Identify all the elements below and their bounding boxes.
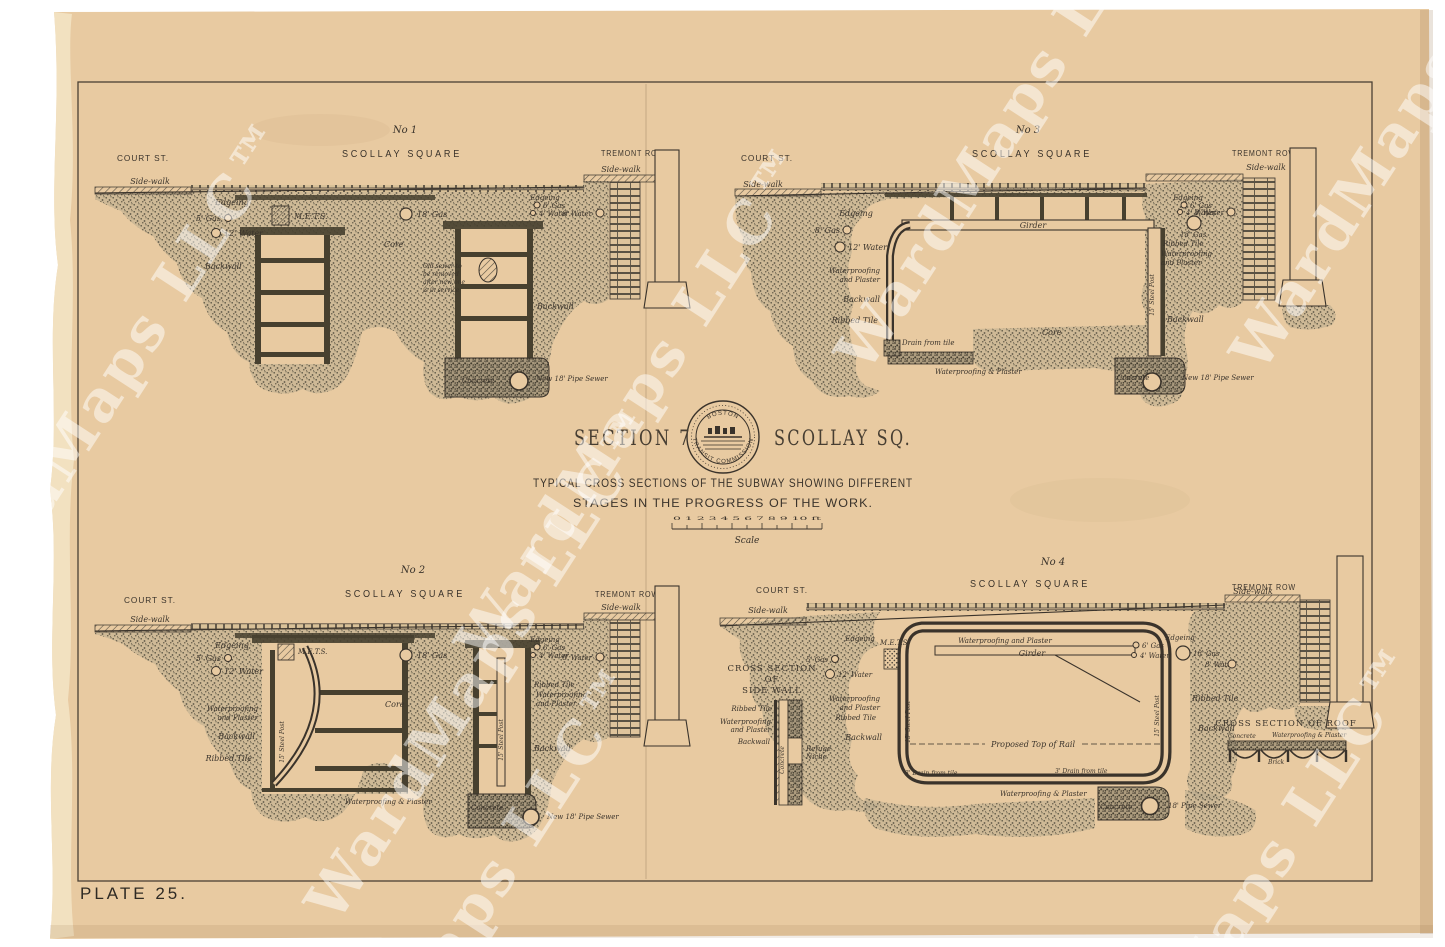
no2-water4-pipe-icon — [531, 653, 536, 658]
no4-water4-label: 4' Water — [1139, 652, 1170, 660]
subtitle-line2: STAGES IN THE PROGRESS OF THE WORK. — [573, 496, 873, 510]
no4-street-paving — [806, 603, 1225, 611]
side-wall-waterproofing-l2: and Plaster — [731, 726, 772, 734]
no4-steel-post-left-label: 15' Steel Post — [905, 701, 912, 743]
no4-concrete-label: Concrete — [1100, 803, 1132, 811]
no3-sidewalk-right-label: Side-walk — [1246, 163, 1286, 172]
no1-sidewalk-right-label: Side-walk — [601, 165, 641, 174]
no3-gas8-label: 8' Gas — [815, 226, 840, 235]
no2-waterproofing-left-l1: Waterproofing — [207, 705, 258, 713]
no1-note-line1: Old sewer to — [423, 263, 462, 270]
no3-gas6-pipe-icon — [1181, 202, 1187, 208]
no4-mets-duct-icon — [884, 649, 899, 669]
side-wall-title-l2: OF — [765, 675, 780, 685]
no4-gas5-pipe-icon — [832, 656, 839, 663]
no4-ribbed-tile-left-label: Ribbed Tile — [834, 714, 876, 722]
no1-water8-pipe-icon — [596, 209, 604, 217]
no3-new-sewer-label: New 18' Pipe Sewer — [1181, 374, 1254, 382]
no2-square-label: SCOLLAY SQUARE — [345, 589, 465, 600]
side-wall-concrete-label: Concrete — [779, 746, 786, 774]
no1-court-st-label: COURT ST. — [117, 153, 169, 163]
side-wall-waterproofing-l1: Waterproofing — [720, 718, 771, 726]
no2-water8-label: 8' Water — [562, 654, 592, 662]
no2-ribbed-tile-left-label: Ribbed Tile — [205, 754, 253, 763]
no1-new-sewer-label: New 18' Pipe Sewer — [535, 375, 608, 383]
no2-sidewalk-left-label: Side-walk — [130, 615, 170, 624]
no2-number: No 2 — [400, 565, 425, 576]
plate-label: PLATE 25. — [80, 884, 188, 904]
no2-edgeing-left-label: Edgeing — [214, 641, 249, 650]
no1-backwall-left-label: Backwall — [204, 262, 242, 271]
no4-steel-post-right-label: 15' Steel Post — [1154, 695, 1161, 737]
roof-title: CROSS SECTION OF ROOF — [1215, 719, 1357, 729]
no1-mets-label: M.E.T.S. — [293, 212, 328, 221]
no1-gas5-pipe-icon — [225, 215, 232, 222]
no4-edgeing-right-label: Edgeing — [1164, 634, 1195, 642]
no2-new-sewer-label: New 18' Pipe Sewer — [546, 813, 619, 821]
no2-edgeing-right-label: Edgeing — [529, 636, 560, 644]
no3-gas8-pipe-icon — [843, 226, 851, 234]
no1-edgeing-right-label: Edgeing — [529, 194, 560, 202]
no1-sidewalk-right — [584, 175, 655, 182]
no4-gas18-pipe-icon — [1176, 646, 1190, 660]
no4-ribbed-tile-right-label: Ribbed Tile — [1191, 694, 1239, 703]
no1-gas6-label: 6' Gas — [543, 202, 565, 210]
scanned-plate-page: BOSTON TRANSIT COMMISSION SECTION 7 SCOL… — [0, 0, 1445, 947]
no1-water12-label: 12' Water — [224, 229, 264, 238]
no3-tremont-row-label: TREMONT ROW — [1232, 148, 1296, 158]
no3-water12-label: 12' Water — [848, 243, 888, 252]
no4-sidewalk-left-label: Side-walk — [748, 606, 788, 615]
no4-waterproofing-bottom-label: Waterproofing & Plaster — [1000, 790, 1087, 798]
no3-waterproofing-bottom-label: Waterproofing & Plaster — [935, 368, 1022, 376]
roof-waterproofing-label: Waterproofing & Plaster — [1272, 732, 1347, 739]
no3-waterproofing-left-l1: Waterproofing — [829, 267, 880, 275]
no3-water8-pipe-icon — [1227, 208, 1235, 216]
no4-drain-left-label: 3' Drain from tile — [905, 770, 958, 777]
roof-concrete-band — [1228, 741, 1346, 750]
no4-water8-pipe-icon — [1228, 660, 1236, 668]
no3-floor — [888, 352, 973, 364]
no4-sidewalk-right-label: Side-walk — [1233, 587, 1273, 596]
no3-ribbed-tile-left-label: Ribbed Tile — [831, 316, 879, 325]
no2-court-st-label: COURT ST. — [124, 595, 176, 605]
no2-gas5-pipe-icon — [225, 655, 232, 662]
subtitle-line1: TYPICAL CROSS SECTIONS OF THE SUBWAY SHO… — [533, 476, 913, 490]
no2-waterproofing-left-l2: and Plaster — [218, 714, 259, 722]
no1-number: No 1 — [392, 125, 417, 136]
no3-building-wall — [1243, 178, 1275, 300]
no4-water12-pipe-icon — [826, 670, 835, 679]
no4-drain-right-label: 3' Drain from tile — [1055, 768, 1108, 775]
no1-note-line4: is in service — [423, 287, 460, 294]
no3-edgeing-right-label: Edgeing — [1172, 194, 1203, 202]
no4-waterproofing-left-l1: Waterproofing — [829, 695, 880, 703]
no4-pipe-sewer-label: 18' Pipe Sewer — [1168, 802, 1222, 810]
roof-brick-label: Brick — [1267, 759, 1285, 766]
no1-building-wall — [610, 182, 640, 299]
no2-ribbed-tile-right-label: Ribbed Tile — [533, 681, 575, 689]
side-wall-refuge-niche — [788, 738, 802, 764]
no3-waterproofing-right-l2: and Plaster — [1161, 259, 1202, 267]
no3-girder-label: Girder — [1020, 221, 1048, 230]
no3-steel-post-label: 15' Steel Post — [1149, 274, 1156, 316]
no4-number: No 4 — [1040, 557, 1065, 568]
section-title: SECTION 7 — [574, 426, 692, 450]
no4-waterproofing-roof-label: Waterproofing and Plaster — [958, 637, 1052, 645]
no3-concrete-label: Concrete — [1117, 374, 1149, 382]
no2-gas18-pipe-icon — [400, 649, 412, 661]
side-wall-refuge-l1: Refuge — [805, 745, 831, 753]
no3-street-paving — [821, 183, 1146, 191]
no3-sidewalk-left-label: Side-walk — [743, 180, 783, 189]
no2-sidewalk-right-label: Side-walk — [601, 603, 641, 612]
no1-water4-pipe-icon — [531, 211, 536, 216]
no3-water8-label: 8' Water — [1194, 209, 1224, 217]
no4-gas6-pipe-icon — [1133, 642, 1139, 648]
side-wall-title-l3: SIDE WALL — [742, 686, 802, 696]
no4-girder-label: Girder — [1019, 649, 1047, 658]
side-wall-backwall-label: Backwall — [737, 738, 770, 746]
no4-water4-pipe-icon — [1132, 653, 1137, 658]
no3-drain-label: Drain from tile — [901, 339, 955, 347]
side-wall-title-l1: CROSS SECTION — [727, 664, 816, 674]
no2-new-sewer-pipe-icon — [523, 809, 539, 825]
no2-core-label: Core — [385, 700, 405, 709]
no1-water12-pipe-icon — [212, 229, 221, 238]
no4-backwall-left-label: Backwall — [844, 733, 882, 742]
roof-concrete-label: Concrete — [1228, 733, 1256, 740]
no2-gas5-label: 5' Gas — [196, 654, 221, 663]
no1-gas6-pipe-icon — [534, 202, 540, 208]
no4-sidewalk-right — [1225, 595, 1300, 602]
side-wall-ribbed-tile-label: Ribbed Tile — [730, 705, 772, 713]
no3-gas18-pipe-icon — [1187, 216, 1201, 230]
no1-note-line3: after new one — [423, 279, 465, 286]
no2-steel-post-left-label: 15' Steel Post — [279, 721, 286, 763]
no3-court-st-label: COURT ST. — [741, 153, 793, 163]
no2-tremont-row-label: TREMONT ROW — [595, 589, 659, 599]
no2-water12-label: 12' Water — [224, 667, 264, 676]
no2-gas18-label: 18' Gas — [417, 651, 447, 660]
no1-sidewalk-left-label: Side-walk — [130, 177, 170, 186]
no2-mets-label: M.E.T.S. — [297, 648, 327, 656]
no4-square-label: SCOLLAY SQUARE — [970, 579, 1090, 590]
no3-gas18-label: 18' Gas — [1180, 231, 1207, 239]
no3-waterproofing-left-l2: and Plaster — [840, 276, 881, 284]
plate-drawing: BOSTON TRANSIT COMMISSION SECTION 7 SCOL… — [0, 0, 1445, 947]
no3-ribbed-tile-right-label: Ribbed Tile — [1162, 240, 1204, 248]
no1-edgeing-left-label: Edgeing — [214, 198, 249, 207]
no2-backwall-left-label: Backwall — [217, 732, 255, 741]
square-title: SCOLLAY SQ. — [774, 426, 912, 450]
no1-mets-duct-icon — [272, 206, 289, 225]
no1-new-sewer-pipe-icon — [510, 372, 528, 390]
no3-backwall-right-label: Backwall — [1166, 315, 1204, 324]
no4-mets-label: M.E.T.S. — [879, 639, 909, 647]
no4-building-wall — [1300, 600, 1330, 702]
no2-backwall-right-label: Backwall — [533, 744, 571, 753]
no2-waterproofing-right-l2: and Plaster — [536, 700, 577, 708]
scale-label: Scale — [735, 536, 760, 546]
no4-gas18-label: 18' Gas — [1193, 650, 1220, 658]
no3-sidewalk-right — [1146, 174, 1243, 181]
no3-waterproofing-right-l1: Waterproofing — [1161, 250, 1212, 258]
no1-old-sewer-icon — [479, 258, 497, 282]
side-wall-refuge-l2: Niche — [805, 753, 827, 761]
no3-square-label: SCOLLAY SQUARE — [972, 149, 1092, 160]
no2-steel-post-right-label: 15' Steel Post — [498, 719, 505, 761]
no4-edgeing-left-label: Edgeing — [844, 635, 875, 643]
no3-core-label: Core — [1042, 328, 1062, 337]
no1-concrete-label: Concrete — [462, 377, 494, 385]
no1-gas18-pipe-icon — [400, 208, 412, 220]
no1-backwall-right-label: Backwall — [536, 302, 574, 311]
no2-mets-duct-icon — [278, 644, 294, 660]
no2-sidewalk-right — [584, 613, 655, 620]
no4-waterproofing-left-l2: and Plaster — [840, 704, 881, 712]
no4-water12-label: 12' Water — [838, 671, 873, 679]
no2-gas6-label: 6' Gas — [543, 644, 565, 652]
no2-water12-pipe-icon — [212, 667, 221, 676]
no4-proposed-rail-label: Proposed Top of Rail — [990, 740, 1076, 749]
no4-gas5-label: 5' Gas — [806, 656, 828, 664]
no3-water12-pipe-icon — [835, 242, 845, 252]
no1-gas18-label: 18' Gas — [417, 210, 447, 219]
scale-tick-numbers: 0 1 2 3 4 5 6 7 8 9 10 ft — [673, 516, 821, 522]
no2-concrete-label: Concrete — [471, 804, 503, 812]
no1-concrete-footing — [445, 358, 549, 397]
no4-court-st-label: COURT ST. — [756, 585, 808, 595]
no2-gas6-pipe-icon — [534, 644, 540, 650]
no2-building-wall — [610, 620, 640, 737]
no3-water4-pipe-icon — [1178, 210, 1183, 215]
no3-edgeing-left-label: Edgeing — [838, 209, 873, 218]
no4-gas6-label: 6' Gas — [1142, 642, 1164, 650]
no2-water8-pipe-icon — [596, 653, 604, 661]
no2-waterproofing-right-l1: Waterproofing — [536, 691, 587, 699]
ragged-left-edge — [50, 12, 74, 939]
no1-water8-label: 8' Water — [562, 210, 592, 218]
no3-number: No 3 — [1015, 125, 1040, 136]
no2-waterproofing-bottom-label: Waterproofing & Plaster — [345, 798, 432, 806]
no1-note-line2: be removed — [423, 271, 459, 278]
no4-sewer-pipe-icon — [1142, 798, 1159, 815]
no1-square-label: SCOLLAY SQUARE — [342, 149, 462, 160]
no3-backwall-left-label: Backwall — [842, 295, 880, 304]
no1-gas5-label: 5' Gas — [196, 214, 221, 223]
no1-core-label: Core — [384, 240, 404, 249]
